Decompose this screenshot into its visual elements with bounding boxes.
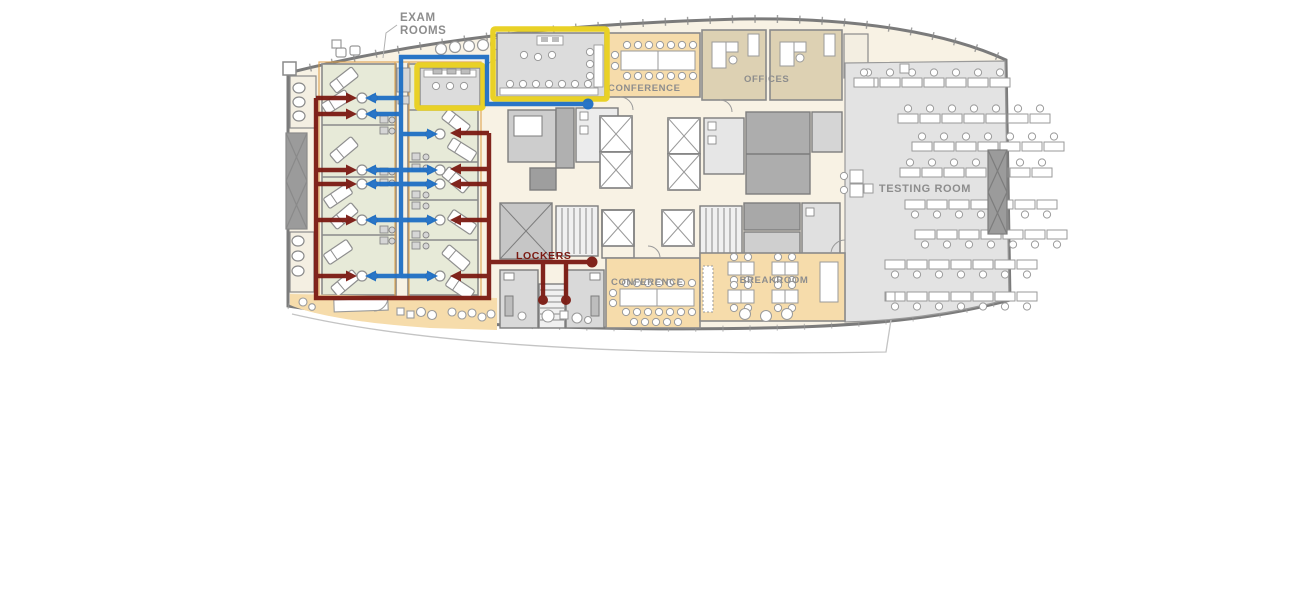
label-conference-top: CONFERENCE [608,83,681,94]
label-breakroom: BREAKROOM [740,275,809,286]
red-route-locker-dot [561,295,571,305]
conference-room-top: CONFERENCE [607,33,700,97]
label-lockers: LOCKERS [516,250,572,262]
breakroom: BREAKROOM [700,253,845,322]
red-route-origin-dot [587,257,598,268]
training-room [497,33,605,97]
label-conference-bottom: CONFERENCE [611,277,684,288]
floor-plan-svg: CONFERENCE OFFICES [0,0,1300,600]
offices: OFFICES [702,30,842,100]
testing-room: TESTING ROOM [840,61,1067,322]
label-offices: OFFICES [744,74,789,85]
floor-plan-page: CONFERENCE OFFICES [0,0,1300,600]
label-exam-rooms-line1: EXAM [400,12,436,24]
label-testing-room: TESTING ROOM [879,183,971,195]
consult-room [420,68,480,106]
label-exam-rooms-line2: ROOMS [400,25,446,37]
conference-room-bottom: CONFERENCE [606,258,700,328]
blue-route-origin-dot [583,99,594,110]
red-route-locker-dot [538,295,548,305]
